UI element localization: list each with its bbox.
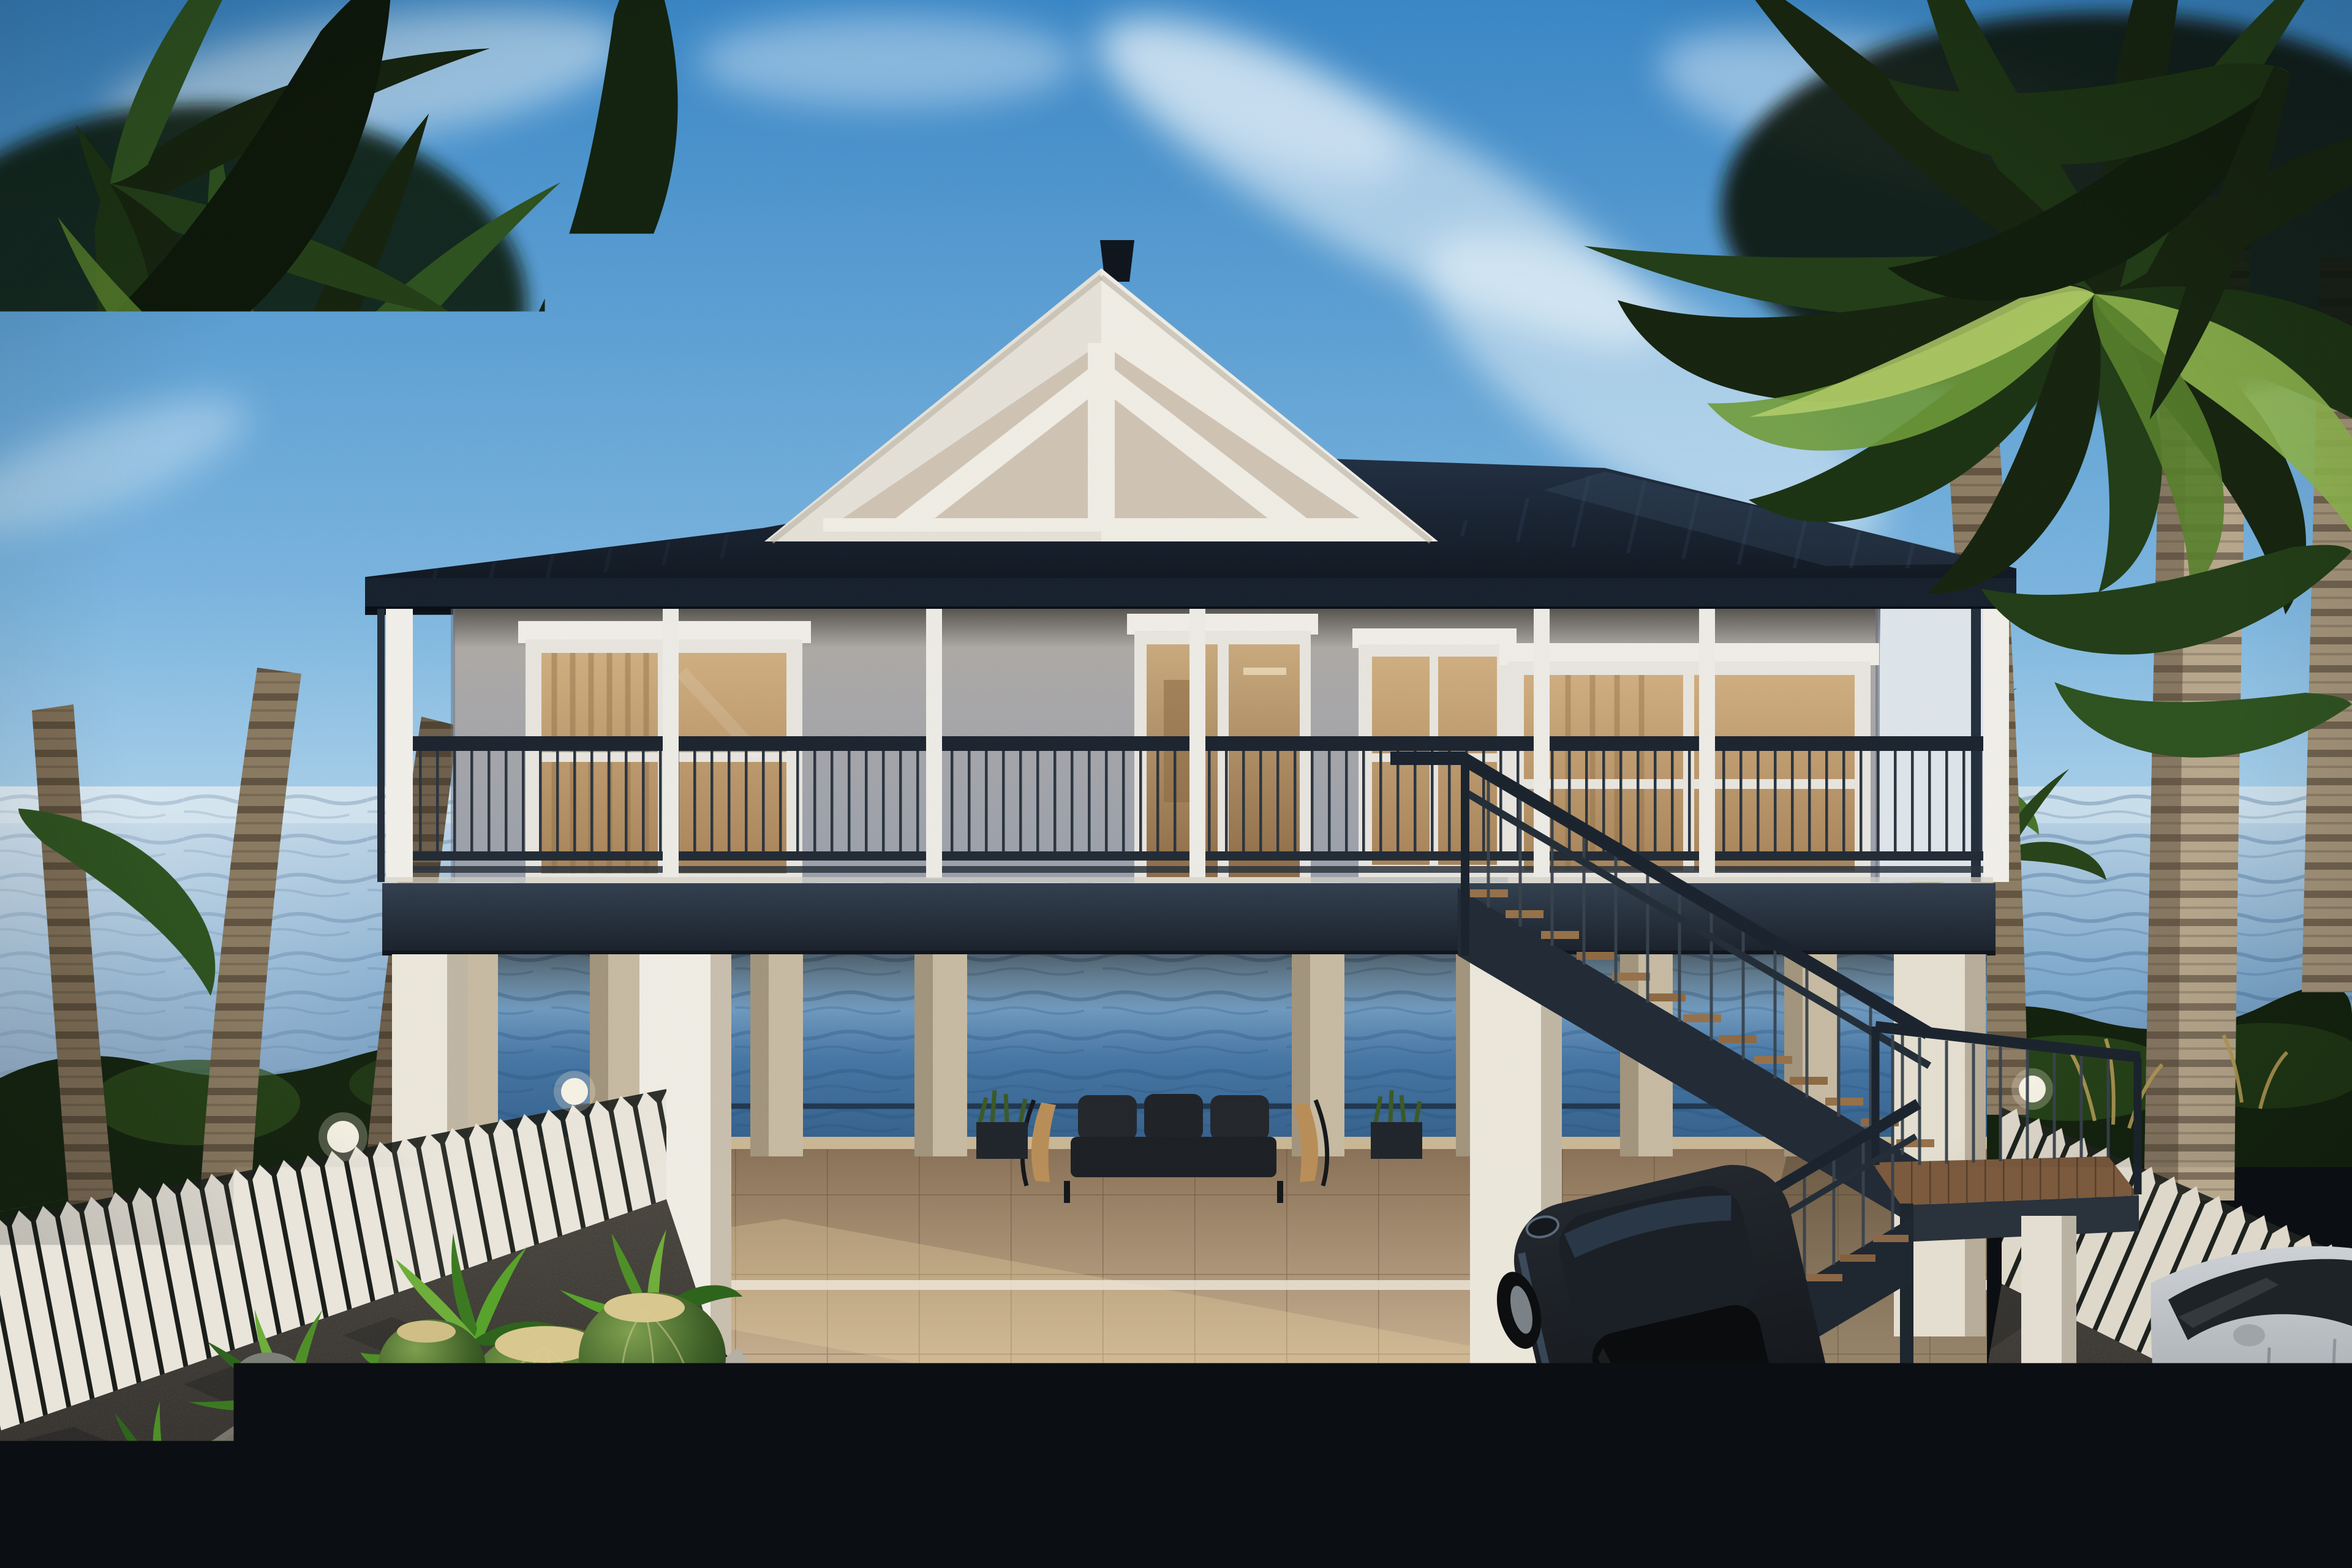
beach-house-rendering <box>0 0 2352 1568</box>
scene-canvas <box>0 0 2352 1568</box>
film-grain <box>0 0 2352 1568</box>
